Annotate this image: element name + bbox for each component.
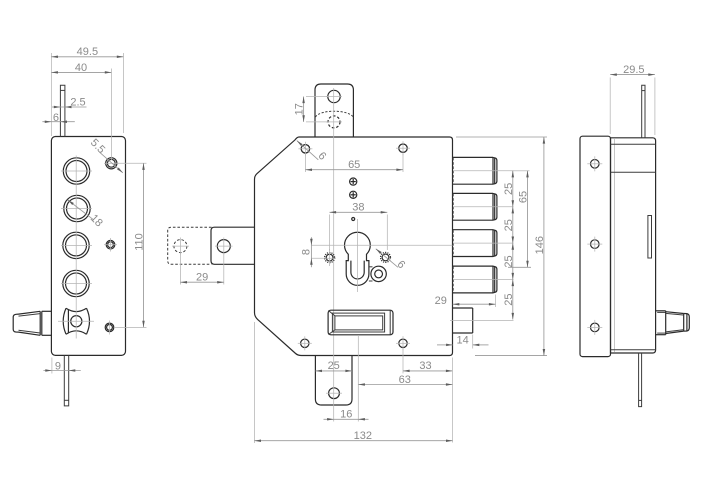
svg-text:38: 38	[352, 201, 364, 213]
svg-text:65: 65	[348, 159, 360, 171]
svg-text:25: 25	[503, 255, 515, 267]
svg-text:33: 33	[419, 360, 431, 372]
svg-text:132: 132	[354, 430, 372, 442]
svg-text:65: 65	[518, 191, 530, 203]
svg-text:110: 110	[133, 233, 145, 251]
svg-text:16: 16	[340, 409, 352, 421]
svg-text:6: 6	[53, 112, 59, 124]
svg-text:9: 9	[55, 360, 61, 372]
svg-text:63: 63	[399, 374, 411, 386]
svg-text:146: 146	[534, 236, 546, 254]
svg-text:49.5: 49.5	[77, 46, 98, 58]
svg-text:25: 25	[328, 360, 340, 372]
svg-text:8: 8	[301, 249, 313, 255]
svg-text:14: 14	[456, 335, 468, 347]
svg-text:29: 29	[435, 295, 447, 307]
svg-text:17: 17	[293, 103, 305, 115]
svg-text:29.5: 29.5	[623, 64, 644, 76]
svg-text:29: 29	[196, 271, 208, 283]
svg-text:25: 25	[503, 293, 515, 305]
svg-text:25: 25	[503, 183, 515, 195]
svg-text:2.5: 2.5	[70, 97, 85, 109]
svg-text:25: 25	[503, 219, 515, 231]
svg-text:40: 40	[75, 62, 87, 74]
